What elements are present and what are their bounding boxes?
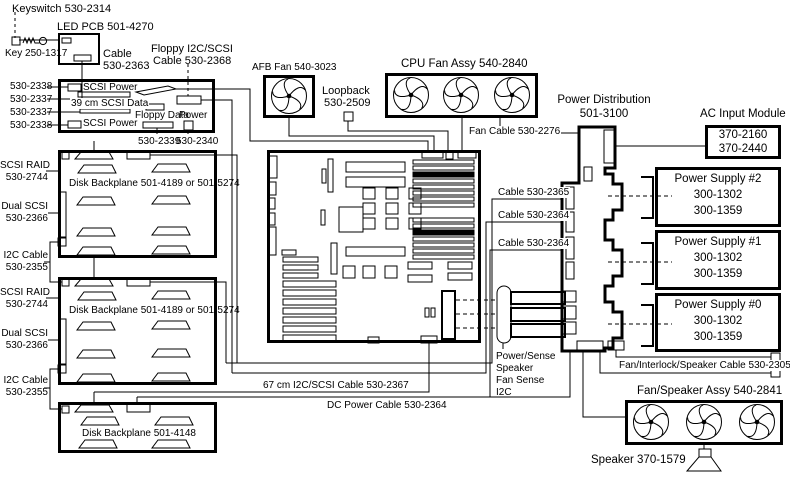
power-sense-label-4: I2C <box>496 387 512 398</box>
floppy-cable-label-2: Cable 530-2368 <box>153 55 231 67</box>
bp1-i2c-1: I2C Cable <box>0 250 48 261</box>
ac-pn-1: 370-2160 <box>707 129 779 142</box>
bp2-i2c-2: 530-2355 <box>0 387 48 398</box>
led-pcb-label: LED PCB 501-4270 <box>57 21 154 33</box>
ps0-title: Power Supply #0 <box>658 299 778 312</box>
ps0-pn1: 300-1302 <box>658 315 778 328</box>
cpu-fan-label: CPU Fan Assy 540-2840 <box>401 58 528 71</box>
bp3-name: Disk Backplane 501-4148 <box>78 428 200 439</box>
ac-pn-2: 370-2440 <box>707 143 779 156</box>
bp2-name: Disk Backplane 501-4189 or 501-5274 <box>68 305 212 316</box>
fan-interlock-label: Fan/Interlock/Speaker Cable 530-2305 <box>618 360 790 371</box>
scsi-power-bottom-label: SCSI Power <box>83 118 137 129</box>
hardware-cabling-diagram: Keyswitch 530-2314 LED PCB 501-4270 Key … <box>0 0 790 477</box>
cable-2365-label: Cable 530-2365 <box>497 187 570 198</box>
loopback-label-2: 530-2509 <box>324 97 371 109</box>
dc-power-cable-label: DC Power Cable 530-2364 <box>326 400 448 411</box>
power-sense-label-1: Power/Sense <box>496 351 555 362</box>
ps2-title: Power Supply #2 <box>658 173 778 186</box>
cable-2363-label-2: 530-2363 <box>103 60 150 72</box>
power-sense-label-2: Speaker <box>496 363 533 374</box>
fan-speaker-label: Fan/Speaker Assy 540-2841 <box>637 385 782 398</box>
speaker-label: Speaker 370-1579 <box>591 454 686 467</box>
io-pn-4: 530-2338 <box>10 120 52 131</box>
power-distribution-label-2: 501-3100 <box>545 108 663 121</box>
bp2-dual-scsi-2: 530-2366 <box>0 340 48 351</box>
bp1-name: Disk Backplane 501-4189 or 501-5274 <box>68 178 212 189</box>
io-pn-2: 530-2337 <box>10 94 52 105</box>
ps1-pn1: 300-1302 <box>658 252 778 265</box>
ps2-pn1: 300-1302 <box>658 189 778 202</box>
power-distribution-label-1: Power Distribution <box>545 94 663 107</box>
bp2-scsi-raid-2: 530-2744 <box>0 299 48 310</box>
floppy-cable-label-1: Floppy I2C/SCSI <box>151 43 233 55</box>
cable-2363-label-1: Cable <box>103 48 132 60</box>
bp2-i2c-1: I2C Cable <box>0 375 48 386</box>
ps2-pn2: 300-1359 <box>658 205 778 218</box>
cable-2364a-label: Cable 530-2364 <box>497 210 570 221</box>
fan-cable-label: Fan Cable 530-2276 <box>468 126 561 137</box>
io-pn-1: 530-2338 <box>10 81 52 92</box>
bp1-scsi-raid-2: 530-2744 <box>0 172 48 183</box>
i2c-scsi-67cm-label: 67 cm I2C/SCSI Cable 530-2367 <box>262 380 410 391</box>
bp1-dual-scsi-1: Dual SCSI <box>0 201 48 212</box>
power-label: Power <box>179 110 207 121</box>
keyswitch-label: Keyswitch 530-2314 <box>12 3 111 15</box>
scsi-power-top-label: SCSI Power <box>83 82 137 93</box>
cable-2364b-label: Cable 530-2364 <box>497 238 570 249</box>
bp1-scsi-raid-1: SCSI RAID <box>0 160 48 171</box>
key-label: Key 250-1317 <box>5 48 67 59</box>
labels-layer: Keyswitch 530-2314 LED PCB 501-4270 Key … <box>0 0 790 477</box>
bp2-dual-scsi-1: Dual SCSI <box>0 328 48 339</box>
bp2-scsi-raid-1: SCSI RAID <box>0 287 48 298</box>
floppy-pn-label: 530-2339 <box>138 136 180 147</box>
ps0-pn2: 300-1359 <box>658 331 778 344</box>
power-sense-label-3: Fan Sense <box>496 375 544 386</box>
loopback-label-1: Loopback <box>322 85 370 97</box>
afb-fan-label: AFB Fan 540-3023 <box>252 62 337 73</box>
ps1-pn2: 300-1359 <box>658 268 778 281</box>
scsi-data-label: 39 cm SCSI Data <box>70 98 149 109</box>
ac-input-label: AC Input Module <box>700 108 786 121</box>
bp1-i2c-2: 530-2355 <box>0 262 48 273</box>
ps1-title: Power Supply #1 <box>658 236 778 249</box>
bp1-dual-scsi-2: 530-2366 <box>0 213 48 224</box>
io-pn-3: 530-2337 <box>10 107 52 118</box>
power-pn-label: 530-2340 <box>176 136 218 147</box>
